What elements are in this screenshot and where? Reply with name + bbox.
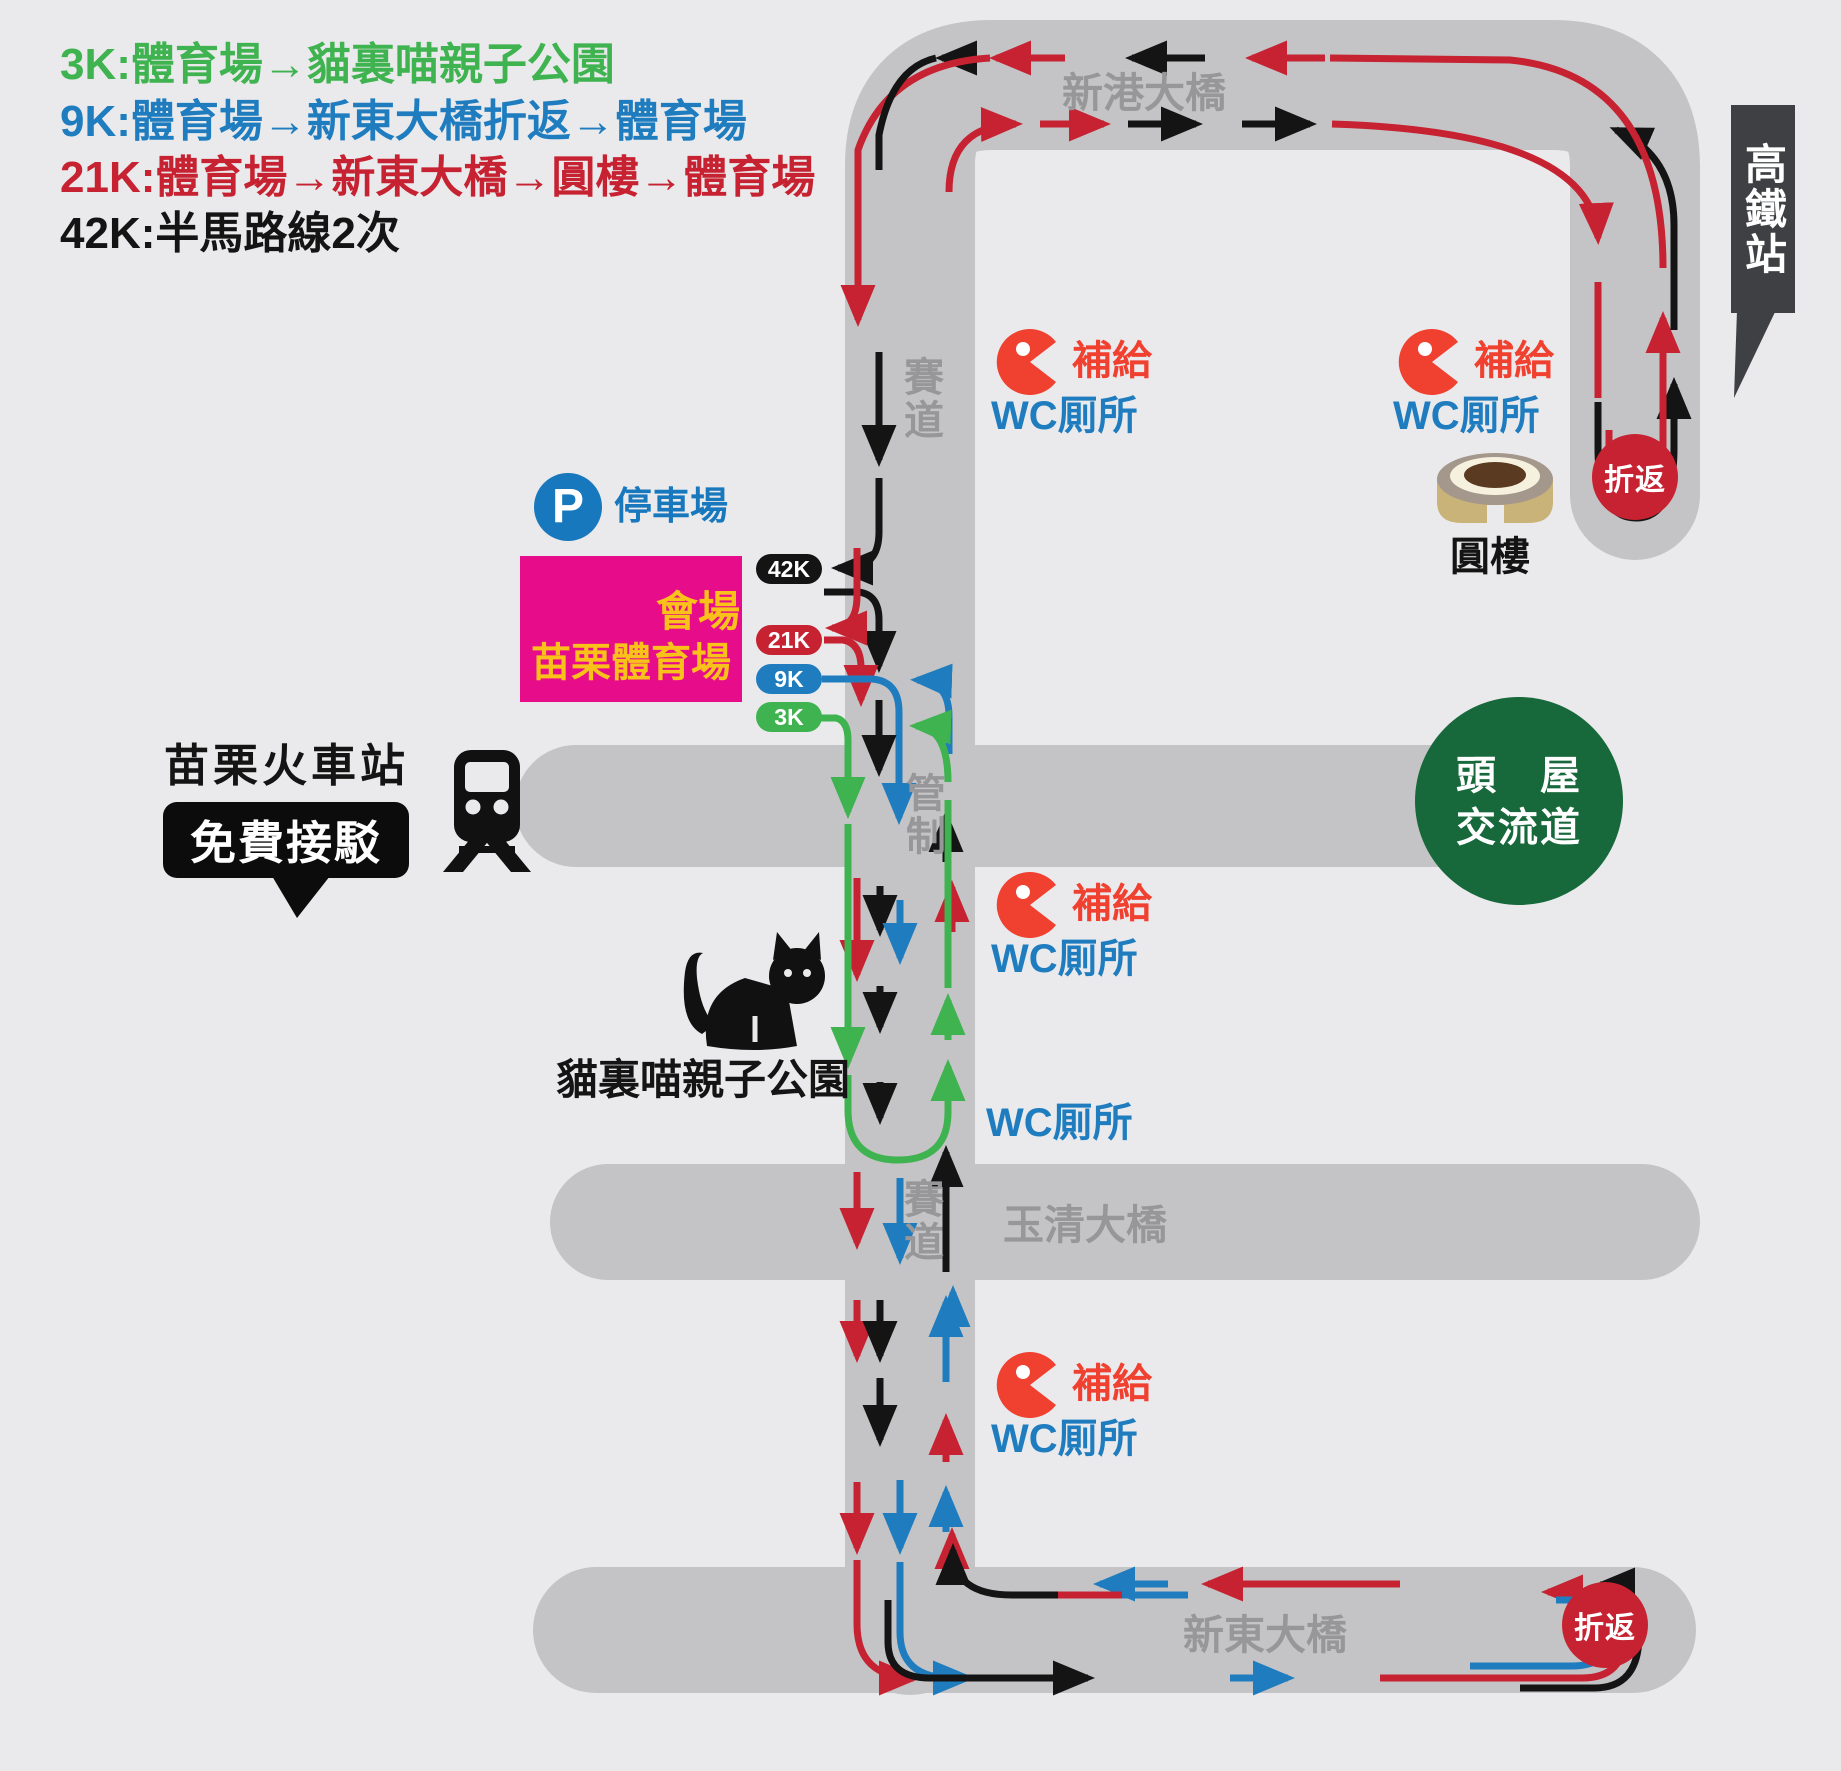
road-label-course-1: 賽道 xyxy=(897,356,943,442)
map-canvas xyxy=(0,0,1841,1771)
supply-label: 補給 xyxy=(1072,338,1152,384)
shuttle-bubble: 免費接駁 xyxy=(163,802,409,878)
turnaround-badge-xindong: 折返 xyxy=(1562,1582,1648,1668)
roundhouse-icon xyxy=(1437,453,1553,523)
wc-label: WC厠所 xyxy=(1393,393,1540,439)
wc-label: WC厠所 xyxy=(991,393,1138,439)
interchange-line1: 頭 屋 xyxy=(1415,750,1623,802)
wc-label: WC厠所 xyxy=(986,1100,1133,1146)
supply-icon xyxy=(997,872,1056,938)
interchange-label: 頭 屋 交流道 xyxy=(1415,750,1623,854)
road-label-xingang-bridge: 新港大橋 xyxy=(1062,70,1226,117)
checkpoint-21k: 21K xyxy=(756,625,822,655)
venue-label: 會場 xyxy=(656,588,740,636)
legend-3k: 3K:體育場→貓裏喵親子公園 xyxy=(60,40,615,91)
cat-icon xyxy=(684,932,825,1050)
supply-label: 補給 xyxy=(1474,338,1554,384)
train-station-label: 苗栗火車站 xyxy=(164,740,409,792)
parking-label: 停車場 xyxy=(614,486,728,530)
course-map: 3K:體育場→貓裏喵親子公園 9K:體育場→新東大橋折返→體育場 21K:體育場… xyxy=(0,0,1841,1771)
road-label-course-2: 賽道 xyxy=(897,1178,943,1264)
checkpoint-3k: 3K xyxy=(756,702,822,732)
hsr-station-sign: 高鐵站 xyxy=(1731,105,1795,313)
legend-21k: 21K:體育場→新東大橋→圓樓→體育場 xyxy=(60,153,815,204)
cat-park-label: 貓裏喵親子公園 xyxy=(556,1056,850,1104)
road-label-yuqing-bridge: 玉清大橋 xyxy=(1003,1202,1167,1249)
legend-9k: 9K:體育場→新東大橋折返→體育場 xyxy=(60,97,747,148)
wc-label: WC厠所 xyxy=(991,936,1138,982)
supply-label: 補給 xyxy=(1072,1361,1152,1407)
supply-icon xyxy=(1399,329,1458,395)
roundhouse-label: 圓樓 xyxy=(1450,534,1530,580)
supply-icon xyxy=(997,1352,1056,1418)
hsr-station-label: 高鐵站 xyxy=(1733,142,1794,277)
shuttle-bubble-tail xyxy=(272,876,330,918)
parking-letter: P xyxy=(534,474,602,540)
stadium-label: 苗栗體育場 xyxy=(528,640,734,686)
checkpoint-9k: 9K xyxy=(756,664,822,694)
interchange-line2: 交流道 xyxy=(1415,802,1623,854)
legend-42k: 42K:半馬路線2次 xyxy=(60,209,400,260)
train-icon xyxy=(443,750,531,872)
turnaround-badge-roundhouse: 折返 xyxy=(1592,434,1678,520)
supply-label: 補給 xyxy=(1072,881,1152,927)
checkpoint-42k: 42K xyxy=(756,554,822,584)
hsr-sign-tail xyxy=(1734,310,1776,398)
road-label-control: 管制 xyxy=(899,772,945,858)
wc-label: WC厠所 xyxy=(991,1416,1138,1462)
road-label-xindong-bridge: 新東大橋 xyxy=(1183,1612,1347,1659)
supply-icon xyxy=(997,329,1056,395)
